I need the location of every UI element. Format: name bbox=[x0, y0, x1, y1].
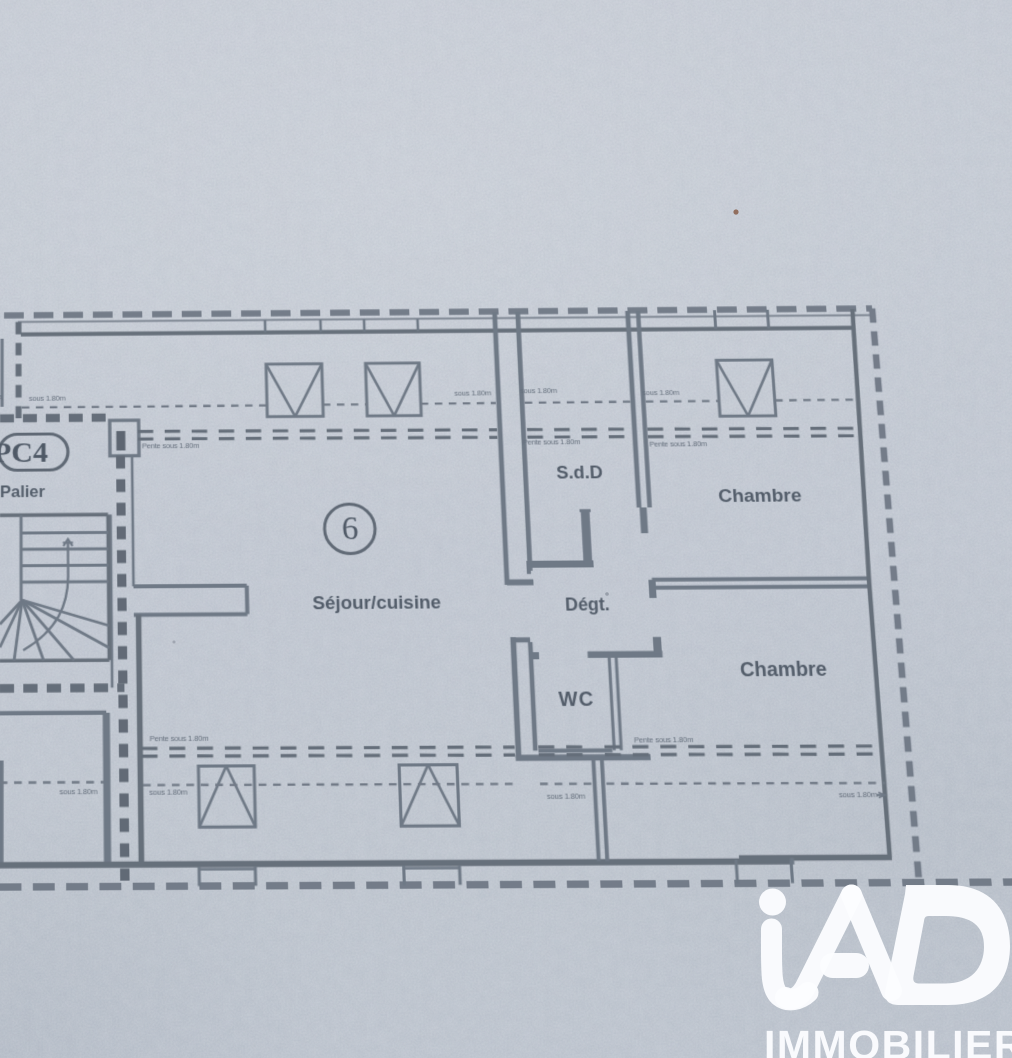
svg-text:IMMOBILIER: IMMOBILIER bbox=[764, 1022, 1012, 1058]
